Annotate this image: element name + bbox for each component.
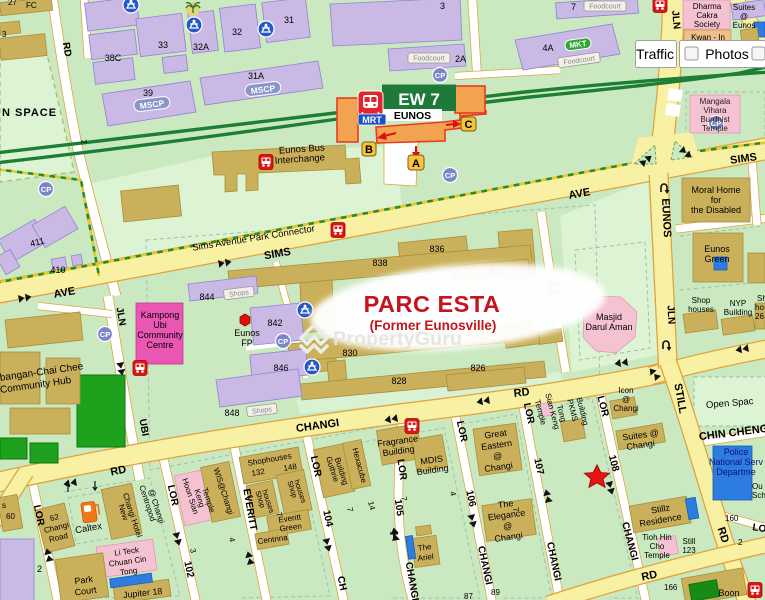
svg-text:Masjid: Masjid [596, 312, 622, 322]
svg-text:Burdhist: Burdhist [700, 115, 730, 124]
svg-text:39: 39 [143, 88, 153, 98]
svg-text:JLN: JLN [665, 305, 677, 324]
svg-text:MRT: MRT [362, 115, 382, 125]
svg-text:N SPACE: N SPACE [2, 107, 57, 119]
svg-text:Sch: Sch [752, 491, 765, 500]
svg-text:31: 31 [284, 15, 294, 25]
svg-text:828: 828 [391, 376, 406, 386]
svg-text:31A: 31A [248, 71, 264, 81]
svg-text:Eunos: Eunos [733, 21, 756, 30]
svg-text:@: @ [492, 450, 502, 461]
svg-text:Temple: Temple [644, 551, 670, 560]
svg-text:838: 838 [372, 258, 387, 268]
svg-text:Suites: Suites [733, 3, 755, 12]
svg-text:3: 3 [2, 30, 7, 39]
svg-text:2: 2 [738, 538, 743, 547]
svg-text:Mangala: Mangala [700, 97, 731, 106]
svg-text:60: 60 [6, 512, 15, 521]
svg-text:Eunos: Eunos [234, 328, 260, 338]
svg-text:846: 846 [273, 363, 288, 373]
svg-text:s: s [2, 501, 6, 510]
svg-text:7: 7 [571, 2, 576, 12]
svg-text:Darul Aman: Darul Aman [585, 322, 632, 332]
svg-text:The: The [497, 498, 514, 510]
svg-text:Temple: Temple [702, 124, 728, 133]
svg-text:842: 842 [267, 318, 282, 328]
svg-text:C: C [465, 119, 473, 131]
svg-text:JLN: JLN [669, 10, 682, 30]
svg-text:the Disabled: the Disabled [691, 205, 741, 215]
svg-text:2: 2 [37, 564, 42, 574]
svg-text:Icon: Icon [618, 386, 633, 395]
svg-text:2A: 2A [455, 54, 466, 64]
svg-text:160: 160 [725, 514, 739, 523]
svg-text:A: A [412, 158, 420, 170]
svg-text:Vihara: Vihara [704, 106, 728, 115]
svg-text:Photos: Photos [705, 46, 749, 62]
svg-text:3: 3 [440, 1, 445, 11]
svg-text:844: 844 [199, 292, 214, 302]
svg-text:@: @ [740, 12, 748, 21]
svg-text:Ubi: Ubi [153, 320, 167, 330]
svg-text:38C: 38C [105, 53, 122, 63]
svg-text:123: 123 [682, 546, 696, 555]
svg-text:RD: RD [513, 386, 530, 400]
svg-text:EW 7: EW 7 [398, 90, 440, 109]
svg-text:NYP: NYP [730, 299, 746, 308]
svg-text:Ou: Ou [752, 482, 763, 491]
svg-text:826: 826 [470, 363, 485, 373]
svg-text:EUNOS: EUNOS [659, 198, 673, 238]
svg-text:National Serv: National Serv [709, 457, 764, 467]
svg-text:410: 410 [50, 265, 65, 275]
svg-text:848: 848 [224, 408, 239, 418]
svg-text:Kampong: Kampong [141, 310, 180, 320]
svg-text:houses: houses [688, 305, 714, 314]
svg-text:836: 836 [429, 244, 444, 254]
svg-text:@: @ [622, 395, 630, 404]
svg-text:26: 26 [755, 312, 764, 321]
svg-text:32A: 32A [193, 42, 209, 52]
svg-text:Traffic: Traffic [636, 46, 674, 62]
svg-text:89: 89 [491, 588, 500, 597]
svg-text:PropertyGuru: PropertyGuru [333, 328, 462, 350]
svg-text:Green: Green [704, 254, 729, 264]
svg-text:B: B [365, 144, 373, 156]
svg-text:Still: Still [683, 537, 696, 546]
svg-text:33: 33 [158, 40, 168, 50]
svg-text:Society: Society [694, 20, 720, 29]
svg-text:Changi: Changi [613, 404, 639, 413]
svg-text:EUNOS: EUNOS [394, 110, 431, 122]
svg-text:Boon: Boon [718, 588, 739, 598]
svg-text:Shop: Shop [692, 296, 711, 305]
svg-text:32: 32 [232, 27, 242, 37]
svg-text:for: for [711, 195, 722, 205]
svg-text:Departme: Departme [716, 467, 756, 477]
svg-text:Building: Building [724, 308, 752, 317]
svg-text:Eunos: Eunos [704, 244, 730, 254]
svg-text:Dharma: Dharma [693, 2, 722, 11]
svg-text:Community: Community [137, 330, 183, 340]
svg-text:27: 27 [8, 0, 17, 7]
svg-text:4A: 4A [542, 43, 553, 53]
svg-text:FP: FP [241, 338, 253, 348]
svg-text:Cho: Cho [650, 542, 665, 551]
svg-text:Foodcourt: Foodcourt [413, 56, 445, 63]
svg-text:Moral Home: Moral Home [691, 185, 740, 195]
svg-text:Foodcourt: Foodcourt [589, 4, 621, 11]
svg-text:Police: Police [724, 447, 749, 457]
svg-text:87: 87 [464, 592, 473, 600]
svg-text:Centre: Centre [146, 340, 173, 350]
svg-text:ho: ho [755, 303, 764, 312]
svg-text:Sh: Sh [757, 294, 765, 303]
svg-text:166: 166 [664, 583, 678, 592]
svg-text:Tioh Hin: Tioh Hin [642, 533, 672, 542]
svg-text:Cakra: Cakra [696, 11, 718, 20]
svg-text:PARC ESTA: PARC ESTA [364, 291, 501, 317]
svg-text:@: @ [502, 520, 512, 531]
svg-text:FC: FC [26, 1, 37, 10]
